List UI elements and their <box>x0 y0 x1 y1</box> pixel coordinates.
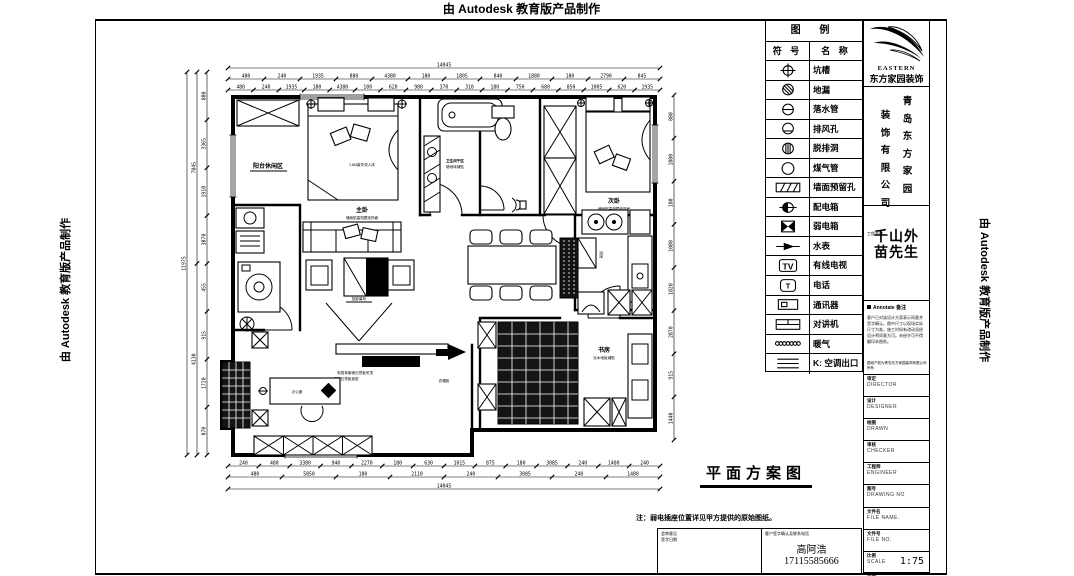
svg-text:850: 850 <box>567 84 576 90</box>
company-name-col-right: 青岛东方家园 <box>901 93 915 205</box>
legend-row: 墙面预留孔 <box>766 178 862 198</box>
svg-text:680: 680 <box>541 84 550 90</box>
svg-text:480: 480 <box>236 84 245 90</box>
lv-box-icon <box>766 217 810 236</box>
projector-screen: 投影幕布 <box>326 296 392 341</box>
svg-text:240: 240 <box>239 460 248 466</box>
titleblock-row-file-no: 文件号 FILE NO. <box>864 530 929 552</box>
dining-screen <box>560 238 578 298</box>
titleblock-row-drawing-no: 图号 DRAWING NO <box>864 485 929 507</box>
svg-text:620: 620 <box>389 84 398 90</box>
legend-row: 脱排洞 <box>766 139 862 159</box>
svg-text:370: 370 <box>440 84 449 90</box>
svg-text:480: 480 <box>251 471 260 477</box>
contact-right-cell: 客户签字确认及联系电话 高阿浩 17115585666 <box>762 529 861 573</box>
svg-text:1880: 1880 <box>528 73 540 79</box>
project-name-box: 工程名称 千山外 苗先生 <box>864 228 929 301</box>
legend-title: 图 例 <box>766 21 862 42</box>
vent-hole-icon <box>766 120 810 139</box>
legend-row: 排风孔 <box>766 120 862 140</box>
water-meter-icon <box>766 237 810 256</box>
svg-text:1020: 1020 <box>668 283 674 295</box>
svg-text:2790: 2790 <box>600 73 612 79</box>
svg-text:1480: 1480 <box>627 471 639 477</box>
utility-fixtures <box>236 208 280 331</box>
phone-icon: T <box>766 276 810 295</box>
svg-text:620: 620 <box>618 84 627 90</box>
legend-row: 地漏 <box>766 81 862 101</box>
sheet-title: 平面方案图 <box>700 462 812 487</box>
svg-text:240: 240 <box>640 460 649 466</box>
svg-text:240: 240 <box>575 471 584 477</box>
legend-row: 对讲机 <box>766 315 862 335</box>
svg-text:14045: 14045 <box>437 62 452 68</box>
company-name-box: 装饰有限公司 青岛东方家园 <box>864 87 929 206</box>
svg-text:5850: 5850 <box>303 471 315 477</box>
edu-stamp-border-left <box>95 19 96 573</box>
dim-top-overall: 14045 <box>226 62 662 70</box>
wall-hole-icon <box>766 178 810 197</box>
svg-text:1480: 1480 <box>608 460 620 466</box>
office-desk-label: 办公桌 <box>292 389 303 394</box>
annotate-square-icon <box>867 305 871 309</box>
svg-text:180: 180 <box>566 73 575 79</box>
legend-row: TV 有线电视 <box>766 256 862 276</box>
legend-col-symbol: 符 号 <box>766 42 810 60</box>
dim-left-a: 8803365191038704559151720870 <box>201 70 209 457</box>
legend-row: 煤气管 <box>766 159 862 179</box>
tv-console <box>336 344 466 367</box>
svg-text:3870: 3870 <box>201 234 207 246</box>
annotate-box: Annotate 备注 客户已对该设计方案表示同意并签字确认。图中尺寸以现场实际… <box>864 301 929 375</box>
svg-text:3365: 3365 <box>201 138 207 150</box>
svg-text:240: 240 <box>262 84 271 90</box>
dim-left-overall: 11975 <box>181 70 189 457</box>
legend-col-name: 名 称 <box>810 42 862 60</box>
svg-text:915: 915 <box>201 331 207 340</box>
svg-text:14045: 14045 <box>437 483 452 489</box>
svg-text:310: 310 <box>465 84 474 90</box>
svg-text:480: 480 <box>242 73 251 79</box>
sofa <box>303 222 401 252</box>
svg-text:2110: 2110 <box>411 471 423 477</box>
svg-text:2870: 2870 <box>668 326 674 338</box>
legend-row: T 电话 <box>766 276 862 296</box>
sheet-note: 注：弱电插座位置详见甲方提供的原始图纸。 <box>636 513 776 523</box>
svg-text:1005: 1005 <box>591 84 603 90</box>
svg-text:240: 240 <box>579 460 588 466</box>
dining-table <box>468 230 556 300</box>
svg-text:TV: TV <box>782 261 793 271</box>
kitchen-fixtures <box>578 210 652 315</box>
downpipe-icon <box>766 100 810 119</box>
radiator-icon <box>766 335 810 354</box>
bed2-bed <box>577 97 653 192</box>
svg-text:875: 875 <box>486 460 495 466</box>
svg-text:T: T <box>785 281 790 290</box>
project-name-label: 工程名称 <box>867 231 883 237</box>
floor-plan: 14045 4802401935880438018018058401880180… <box>178 42 703 512</box>
legend-row: 弱电箱 <box>766 217 862 237</box>
svg-text:4380: 4380 <box>384 73 396 79</box>
titleblock-row-checker: 审核 CHECKER <box>864 441 929 463</box>
svg-text:1440: 1440 <box>668 413 674 425</box>
cable-tv-icon: TV <box>766 256 810 275</box>
svg-text:915: 915 <box>668 371 674 380</box>
office-columns <box>252 332 268 426</box>
bed2-note: 墙面贴高档壁纸饰面 <box>598 206 631 211</box>
titleblock-row-file-name: 文件名 FILE NAME. <box>864 508 929 530</box>
dim-right-a: 88018801801080102028709151440 <box>668 93 676 442</box>
svg-text:880: 880 <box>350 73 359 79</box>
edu-stamp-left: 由 Autodesk 教育版产品制作 <box>57 130 73 450</box>
annotate-notes: 客户已对该设计方案表示同意并签字确认。图中尺寸以现场实际尺寸为准。施工时如有改动… <box>867 315 926 345</box>
svg-text:180: 180 <box>668 198 674 207</box>
brand-logo-cn: 东方家园装饰 <box>864 72 929 85</box>
contact-table: 会审意见 签字日期 客户签字确认及联系电话 高阿浩 17115585666 <box>657 528 862 574</box>
svg-text:480: 480 <box>270 460 279 466</box>
pit-mark-icon <box>766 61 810 80</box>
bed2-label: 次卧 <box>608 197 620 205</box>
comm-icon <box>766 296 810 315</box>
kitchen-label: 厨房 <box>599 251 604 259</box>
svg-text:3085: 3085 <box>546 460 558 466</box>
svg-text:180: 180 <box>490 84 499 90</box>
master-note: 墙面贴高档壁纸饰面 <box>346 215 379 220</box>
svg-text:240: 240 <box>467 471 476 477</box>
annotate-header-cn: 备注 <box>896 305 906 311</box>
intercom-icon <box>766 315 810 334</box>
contact-name: 高阿浩 <box>765 541 858 556</box>
study-rug <box>498 322 578 424</box>
svg-text:980: 980 <box>414 84 423 90</box>
legend-table: 图 例 符 号 名 称 坑槽 地漏 落水管 排风孔 脱排洞 煤气管 <box>765 20 863 372</box>
gas-pipe-icon <box>766 159 810 178</box>
dim-left-mid: 78454130 <box>191 70 199 457</box>
legend-row: 暖气 <box>766 335 862 355</box>
legend-row: 落水管 <box>766 100 862 120</box>
annotate-header-en: Annotate <box>873 305 895 311</box>
hood-vent-icon <box>766 139 810 158</box>
titleblock-row-scale: 比例 SCALE 1:75 <box>864 552 929 574</box>
cad-sheet: 由 Autodesk 教育版产品制作 由 Autodesk 教育版产品制作 由 … <box>0 0 1074 576</box>
svg-text:3085: 3085 <box>519 471 531 477</box>
projector-label: 投影幕布 <box>352 296 367 301</box>
svg-text:1935: 1935 <box>286 84 298 90</box>
study-label: 书房 <box>598 346 610 354</box>
svg-text:1935: 1935 <box>312 73 324 79</box>
study-desk <box>628 334 652 418</box>
office-wardrobe-row <box>254 436 372 455</box>
svg-text:240: 240 <box>278 73 287 79</box>
titleblock-row-director: 审定 DIRECTOR <box>864 375 929 397</box>
annotate-footer: 图纸产权为青岛东方家园装饰有限公司所有 <box>867 361 929 371</box>
dim-top-b: 4802401935180438018062098037031018075068… <box>226 84 662 92</box>
office-note2: 衣帽柜 <box>439 378 450 383</box>
balcony-leisure-label: 阳台休闲区 <box>253 162 283 170</box>
svg-text:180: 180 <box>422 73 431 79</box>
dim-top-a: 4802401935880438018018058401880180279084… <box>226 73 662 81</box>
svg-text:2270: 2270 <box>361 460 373 466</box>
svg-text:630: 630 <box>424 460 433 466</box>
office-note1: 石膏板吊顶 <box>355 370 373 375</box>
svg-text:1880: 1880 <box>668 154 674 166</box>
bath-vanity <box>424 136 440 212</box>
legend-row: 通讯器 <box>766 296 862 316</box>
svg-text:3380: 3380 <box>299 460 311 466</box>
svg-text:180: 180 <box>363 84 372 90</box>
window <box>230 135 237 197</box>
svg-text:11975: 11975 <box>181 256 187 271</box>
svg-text:880: 880 <box>201 91 207 100</box>
dim-bottom-b: 4805850180211024030852401480 <box>226 471 662 479</box>
legend-row: 水表 <box>766 237 862 257</box>
dim-bottom-overall: 14045 <box>226 483 662 491</box>
svg-text:840: 840 <box>494 73 503 79</box>
legend-row: 配电箱 <box>766 198 862 218</box>
svg-text:180: 180 <box>393 460 402 466</box>
bed2-wardrobe <box>544 106 576 214</box>
brand-logo-en: EASTERN <box>864 65 929 72</box>
svg-text:1805: 1805 <box>456 73 468 79</box>
project-name-line2: 苗先生 <box>864 244 929 260</box>
svg-text:180: 180 <box>359 471 368 477</box>
coffee-table <box>344 258 388 296</box>
svg-text:870: 870 <box>201 427 207 436</box>
titleblock-row-engineer: 工程师 ENGINEER <box>864 463 929 485</box>
svg-text:1015: 1015 <box>454 460 466 466</box>
bath-note: 墙地砖铺贴 <box>446 164 464 169</box>
office-desk: 办公桌 <box>258 378 340 422</box>
power-box-icon <box>766 198 810 217</box>
balcony-strip <box>222 362 250 428</box>
svg-text:1720: 1720 <box>201 377 207 389</box>
edu-stamp-top: 由 Autodesk 教育版产品制作 <box>95 0 948 17</box>
legend-row: 坑槽 <box>766 61 862 81</box>
svg-text:880: 880 <box>668 112 674 121</box>
svg-text:940: 940 <box>332 460 341 466</box>
sheet-title-underline <box>700 487 812 488</box>
svg-text:180: 180 <box>313 84 322 90</box>
svg-text:1935: 1935 <box>642 84 654 90</box>
master-label: 主卧 <box>356 206 368 214</box>
scale-value: 1:75 <box>900 556 924 567</box>
study-cabinets <box>584 398 626 426</box>
study-note: 实木地板铺贴 <box>593 355 615 360</box>
svg-text:1080: 1080 <box>668 240 674 252</box>
edu-stamp-border-right <box>946 19 947 573</box>
contact-left-cell: 会审意见 签字日期 <box>658 529 762 573</box>
company-name-col-left: 装饰有限公司 <box>879 107 893 205</box>
master-bed-label: 1.8M豪华双人床 <box>349 162 375 167</box>
svg-text:7845: 7845 <box>191 162 197 174</box>
bath-label: 卫生间干区 <box>446 158 464 163</box>
svg-text:455: 455 <box>201 283 207 292</box>
titleblock-row-drawn: 绘图 DRAWN <box>864 419 929 441</box>
svg-text:845: 845 <box>638 73 647 79</box>
master-wardrobe <box>237 100 299 126</box>
floor-drain-icon <box>766 81 810 100</box>
edu-stamp-right: 由 Autodesk 教育版产品制作 <box>977 130 993 450</box>
master-bed: 1.8M豪华双人床 <box>308 104 398 200</box>
titleblock-row-designer: 设计 DESIGNER <box>864 397 929 419</box>
svg-text:750: 750 <box>516 84 525 90</box>
tv-wall-label: 电视背景墙 <box>337 370 355 375</box>
legend-row: K: 空调出口 <box>766 354 862 374</box>
window <box>652 125 659 183</box>
ac-outlet-icon <box>766 354 810 374</box>
bidet-spray <box>512 198 526 212</box>
svg-text:4130: 4130 <box>191 353 197 365</box>
brand-logo-box: EASTERN 东方家园装饰 <box>864 21 929 87</box>
title-block-column: EASTERN 东方家园装饰 装饰有限公司 青岛东方家园 工程名称 千山外 苗先… <box>863 20 930 573</box>
svg-text:1910: 1910 <box>201 186 207 198</box>
eastern-swoosh-icon <box>864 21 929 63</box>
svg-text:4380: 4380 <box>337 84 349 90</box>
contact-phone: 17115585666 <box>765 556 858 567</box>
dim-bottom-a: 2404803380940227018063010158751803085240… <box>226 460 662 468</box>
svg-text:180: 180 <box>517 460 526 466</box>
legend-header: 符 号 名 称 <box>766 42 862 61</box>
